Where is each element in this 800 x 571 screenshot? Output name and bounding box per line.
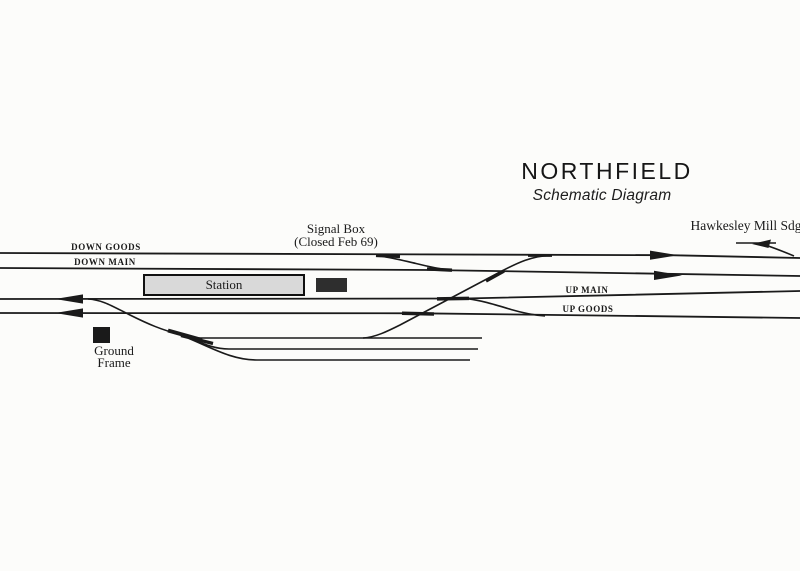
station-label: Station — [206, 277, 243, 293]
ladder-up-goods-junction-mark — [402, 313, 434, 314]
hawkesley-siding-label: Hawkesley Mill Sdg — [691, 219, 800, 233]
signal-box-building — [316, 278, 347, 292]
siding-road-1-line — [178, 334, 482, 338]
ladder-down-main-crossing-mark — [486, 271, 504, 281]
ladder-up-main-junction-mark — [437, 298, 469, 299]
station-box: Station — [143, 274, 305, 296]
up-goods-left-arrow-icon — [55, 308, 83, 317]
down-goods-right-arrow-icon — [650, 251, 678, 260]
down-main-track-label: DOWN MAIN — [74, 258, 136, 267]
down-crossover-start-mark — [376, 255, 400, 256]
schematic-diagram-page: NORTHFIELD Schematic Diagram Hawkesley M… — [0, 0, 800, 571]
page-title: NORTHFIELD — [521, 159, 693, 183]
page-subtitle: Schematic Diagram — [533, 188, 672, 204]
down-main-right-arrow-icon — [654, 271, 682, 280]
ground-frame-label-line2: Frame — [97, 356, 130, 370]
down-main-track-line — [0, 268, 800, 276]
ground-frame-marker — [93, 327, 110, 343]
track-layout-svg — [0, 0, 800, 571]
up-goods-track-label: UP GOODS — [562, 305, 613, 314]
up-main-left-arrow-icon — [55, 294, 83, 303]
up-main-track-label: UP MAIN — [566, 286, 609, 295]
down-goods-track-label: DOWN GOODS — [71, 243, 141, 252]
down-crossover-end-mark — [427, 269, 452, 270]
up-main-track-line — [0, 291, 800, 299]
up-goods-track-line — [0, 313, 800, 318]
hawkesley-direction-arrow-icon — [752, 240, 771, 249]
signal-box-label-line2: (Closed Feb 69) — [294, 235, 378, 249]
